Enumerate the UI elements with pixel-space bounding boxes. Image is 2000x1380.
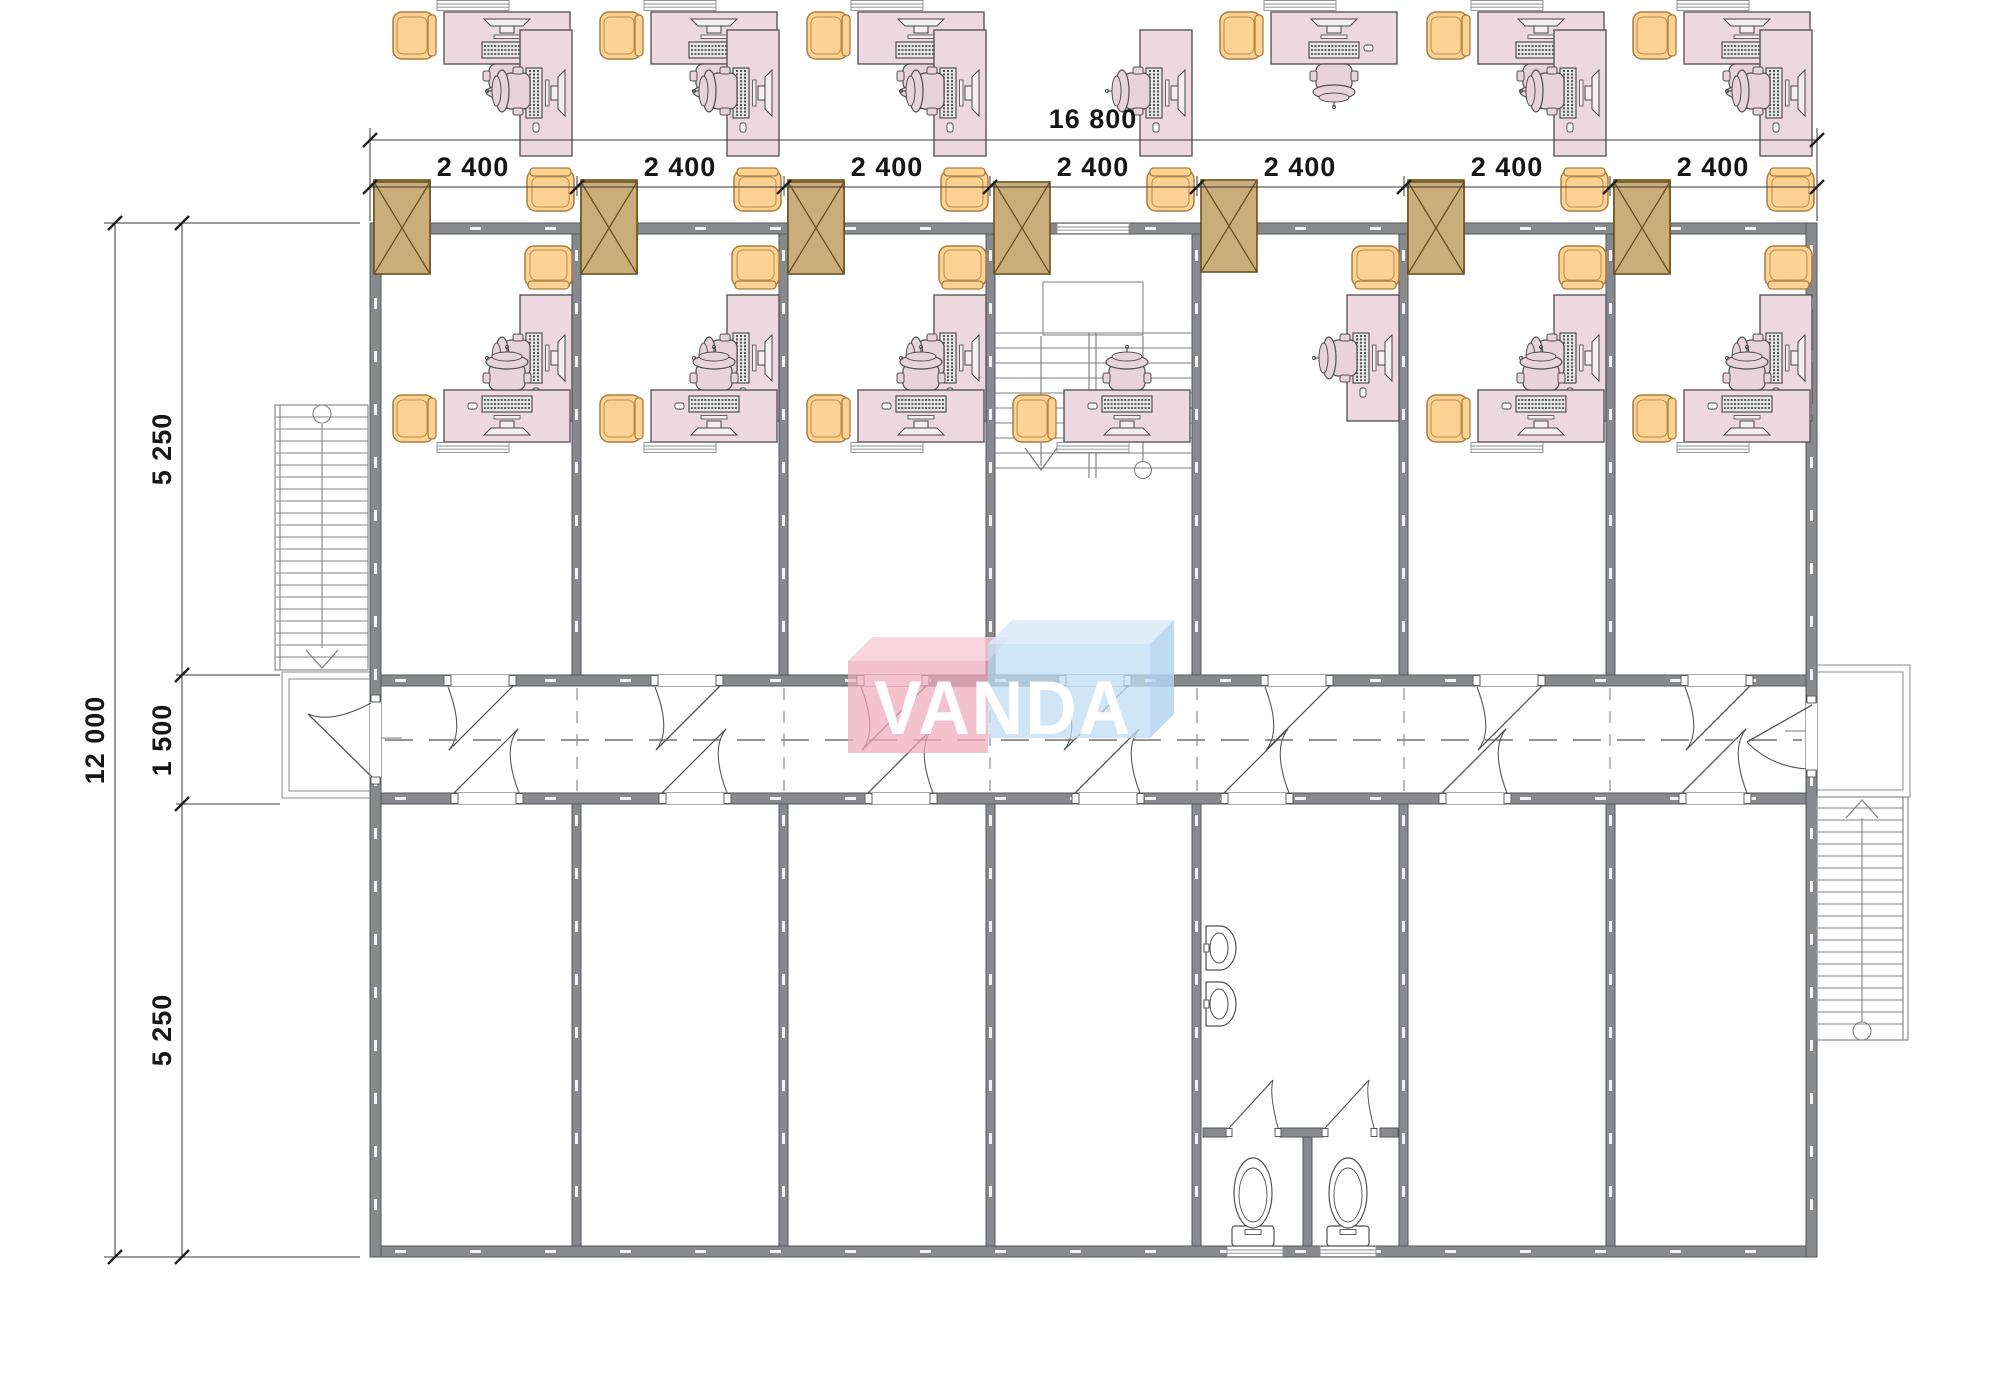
vanda-logo-text: VANDA xyxy=(874,666,1132,751)
sink xyxy=(1204,926,1236,970)
entrance-door-left xyxy=(308,695,381,784)
toilet xyxy=(1327,1158,1369,1246)
wc-stall-door-right xyxy=(1322,1080,1377,1137)
dim-bay-4: 2 400 xyxy=(1057,152,1130,182)
dim-left-bottom: 5 250 xyxy=(147,994,177,1067)
exterior-landing-left xyxy=(282,672,370,798)
toilet xyxy=(1232,1158,1274,1246)
floor-plan-page: 16 800 2 400 2 400 2 400 2 400 2 400 2 4… xyxy=(0,0,2000,1380)
dim-bay-3: 2 400 xyxy=(851,152,924,182)
exterior-stairs-right xyxy=(1817,797,1908,1040)
dim-bay-2: 2 400 xyxy=(644,152,717,182)
floor-plan-drawing: 16 800 2 400 2 400 2 400 2 400 2 400 2 4… xyxy=(0,0,2000,1380)
sink xyxy=(1204,982,1236,1026)
dim-bay-5: 2 400 xyxy=(1264,152,1337,182)
exterior-landing-right xyxy=(1817,665,1910,797)
office-room-bottom-bay4 xyxy=(994,30,1194,453)
vanda-watermark: VANDA xyxy=(848,620,1174,753)
dim-left-top: 5 250 xyxy=(147,413,177,486)
entrance-door-right xyxy=(1747,696,1817,777)
exterior-stairs-left xyxy=(275,405,368,670)
wc-area xyxy=(1203,926,1398,1257)
wc-stall-door-left xyxy=(1226,1080,1281,1137)
dim-total-width: 16 800 xyxy=(1049,104,1138,134)
dim-bay-6: 2 400 xyxy=(1471,152,1544,182)
dim-bay-7: 2 400 xyxy=(1677,152,1750,182)
dim-left-middle: 1 500 xyxy=(147,704,177,777)
dim-bay-1: 2 400 xyxy=(437,152,510,182)
office-room-top-bay5 xyxy=(1201,1,1399,422)
dim-total-height: 12 000 xyxy=(80,696,110,785)
